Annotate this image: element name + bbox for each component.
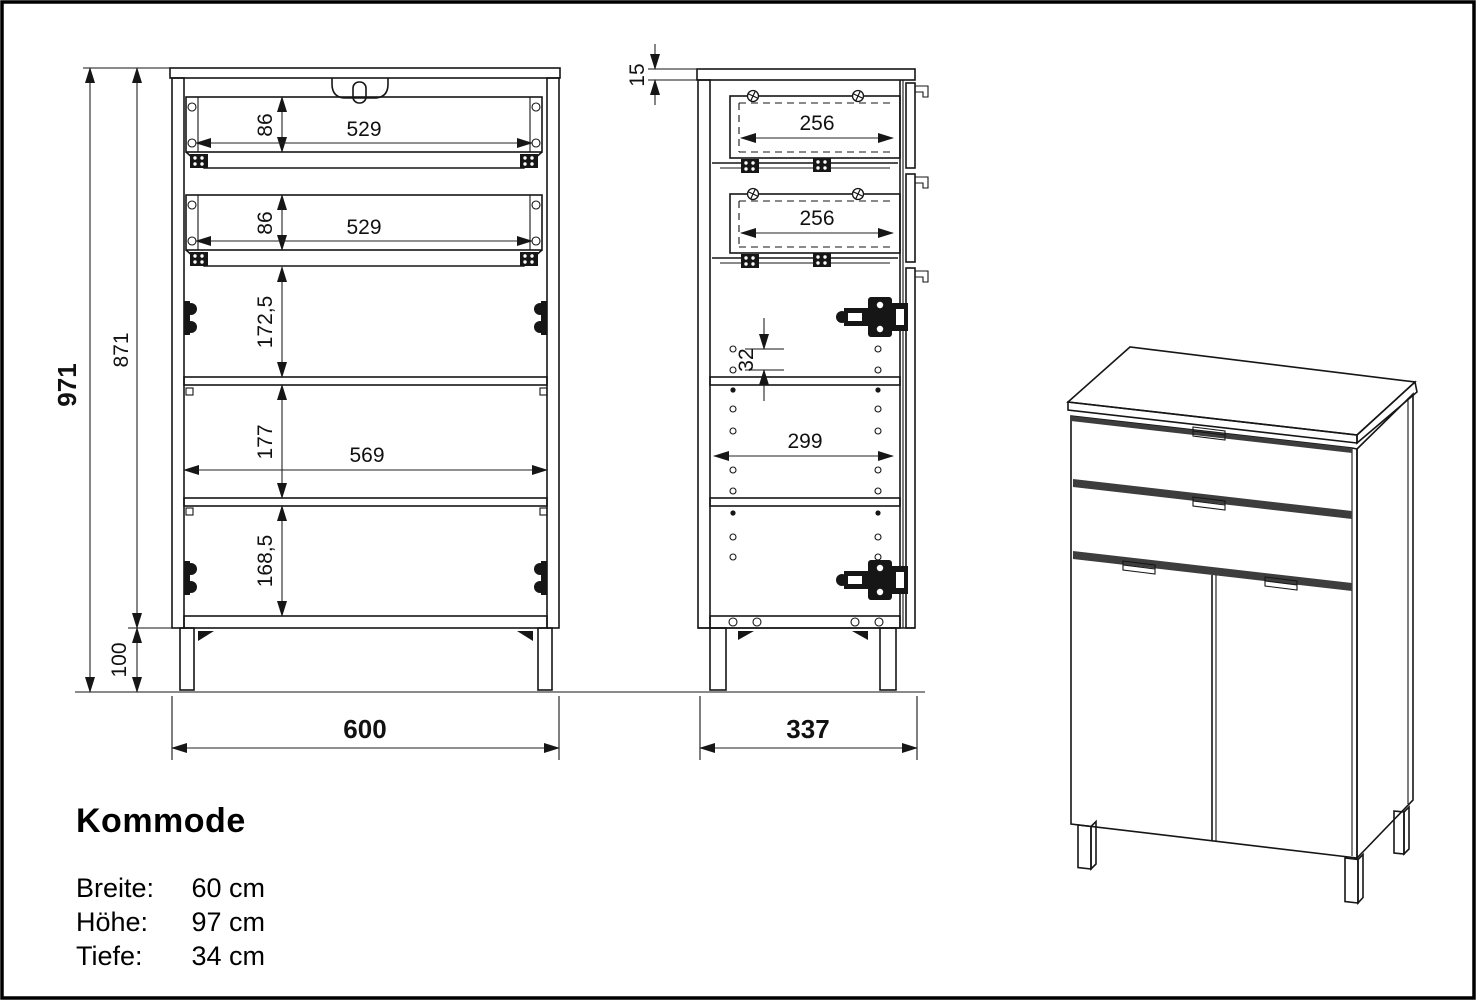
hinge-icon [836,297,908,337]
side-view [697,69,928,690]
drawing-title: Kommode [76,802,265,841]
handle-hook-icon [915,86,928,97]
dim-inner-width: 569 [349,444,384,467]
dim-bottom-section: 168,5 [254,535,277,588]
dim-drawer1-depth: 256 [799,112,834,135]
front-dimensions: 971 871 100 86 529 86 529 172,5 177 569 … [52,68,559,760]
dim-door-top-section: 172,5 [254,296,277,349]
spec-value: 34 cm [192,941,266,971]
dim-drawer1-height: 86 [254,113,277,136]
top-handle-recess [332,78,388,98]
spec-label: Breite: [76,871,184,905]
handle-hook-icon [915,177,928,188]
spec-row-width: Breite: 60 cm [76,871,265,905]
side-leg-right [880,628,896,690]
hinge-icon [184,561,197,595]
info-block: Kommode Breite: 60 cm Höhe: 97 cm Tiefe:… [76,802,265,973]
front-leg-left [180,628,194,690]
side-leg-left [710,628,726,690]
dim-total-height: 971 [52,363,82,406]
dim-drawer2-height: 86 [254,211,277,234]
spec-value: 97 cm [192,907,266,937]
spec-value: 60 cm [192,873,266,903]
front-leg-right [538,628,552,690]
hinge-icon [184,301,197,335]
dim-leg-height: 100 [108,642,131,677]
dim-inner-depth: 299 [787,430,822,453]
hinge-icon [836,560,908,600]
dim-carcass-height: 871 [110,332,133,367]
spec-row-depth: Tiefe: 34 cm [76,939,265,973]
spec-label: Höhe: [76,905,184,939]
dim-drawer2-depth: 256 [799,207,834,230]
perspective-view [1068,347,1417,903]
top-handle-slot [353,82,366,103]
dim-top-thickness: 15 [626,63,649,86]
handle-hook-icon [915,271,928,282]
dim-drawer1-width: 529 [346,118,381,141]
shelf-pin-holes [730,346,881,560]
dim-drawer2-width: 529 [346,216,381,239]
spec-label: Tiefe: [76,939,184,973]
dim-hole-pitch: 32 [735,348,758,371]
side-dimensions: 15 256 256 32 299 337 [626,44,917,760]
dim-total-width: 600 [343,714,386,744]
dim-total-depth: 337 [786,714,829,744]
spec-table: Breite: 60 cm Höhe: 97 cm Tiefe: 34 cm [76,871,265,973]
front-view [170,68,560,690]
dim-shelf-section: 177 [254,424,277,459]
spec-row-height: Höhe: 97 cm [76,905,265,939]
